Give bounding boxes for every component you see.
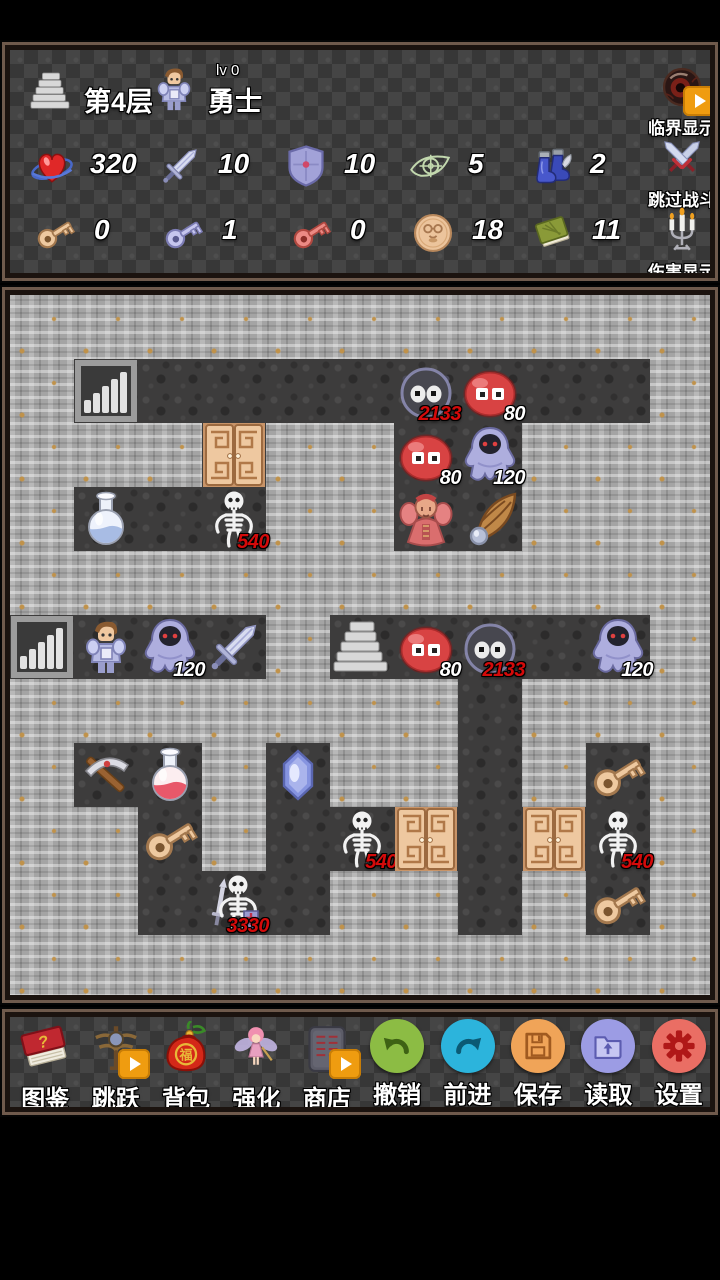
floor-label: 第4层 (84, 80, 153, 119)
attack-value: 10 (218, 148, 249, 180)
entity-slime[interactable]: 80 (394, 423, 458, 487)
floor-tile[interactable] (138, 871, 202, 935)
floor-stairs-icon (28, 68, 74, 114)
toolbar-grid: 图鉴 跳跃 背包 强化 商店撤销前进保存读取设置 (10, 1017, 710, 1107)
load-label: 读取 (584, 1075, 632, 1107)
entity-door[interactable] (522, 807, 586, 871)
floor-tile[interactable] (458, 871, 522, 935)
undo-icon (370, 1019, 424, 1073)
entity-sword[interactable] (202, 615, 266, 679)
key-yellow-icon (586, 871, 650, 935)
blue-key-count: 1 (222, 214, 238, 246)
entity-skeleton[interactable]: 540 (202, 487, 266, 551)
vision-icon (406, 142, 454, 190)
door-icon (522, 807, 586, 871)
wing-icon (458, 487, 522, 551)
potion-blue-icon (74, 487, 138, 551)
load-icon (581, 1019, 635, 1073)
vision-value: 5 (468, 148, 484, 180)
medal-count: 18 (472, 214, 503, 246)
critical-display-icon (657, 62, 707, 112)
entity-ghost[interactable]: 120 (138, 615, 202, 679)
skip-battle-icon (657, 134, 707, 184)
save-label: 保存 (514, 1075, 562, 1107)
play-badge-icon (683, 86, 710, 116)
hero-name: 勇士 (208, 80, 262, 119)
map-grid: 213380801205401208021331205405403330 (10, 295, 710, 995)
save-button[interactable]: 保存 (503, 1017, 573, 1107)
redo-button[interactable]: 前进 (432, 1017, 502, 1107)
defense-icon (282, 142, 330, 190)
hp-icon (28, 142, 76, 190)
jump-icon (88, 1021, 144, 1077)
critical-display-button[interactable]: 临界显示 (636, 62, 710, 139)
red-key-count: 0 (350, 214, 366, 246)
hud-panel: 第4层 lv 0 勇士 3201010520101811 临界显示 跳过战斗 伤… (0, 40, 720, 283)
entity-skeleton-warrior[interactable]: 3330 (202, 871, 266, 935)
boots-value: 2 (590, 148, 606, 180)
enhance-button[interactable]: 强化 (221, 1017, 291, 1107)
red-key-icon (288, 210, 334, 256)
door-icon (202, 423, 266, 487)
bag-icon (158, 1021, 214, 1077)
floor-tile[interactable] (458, 807, 522, 871)
damage-label: 120 (621, 659, 653, 682)
redo-label: 前进 (444, 1075, 492, 1107)
skip-battle-button[interactable]: 跳过战斗 (636, 134, 710, 211)
floor-tile[interactable] (458, 743, 522, 807)
medal-icon (410, 210, 456, 256)
shop-label: 商店 (303, 1079, 351, 1107)
shop-button[interactable]: 商店 (292, 1017, 362, 1107)
entity-bat[interactable]: 2133 (394, 359, 458, 423)
jump-label: 跳跃 (92, 1079, 140, 1107)
floor-tile[interactable] (266, 807, 330, 871)
sword-icon (202, 615, 266, 679)
door-icon (394, 807, 458, 871)
floor-tile[interactable] (586, 359, 650, 423)
yellow-key-icon (32, 210, 78, 256)
floor-tile[interactable] (266, 359, 330, 423)
floor-tile[interactable] (266, 871, 330, 935)
attack-icon (156, 142, 204, 190)
entity-stairs-up[interactable] (74, 359, 138, 423)
jump-button[interactable]: 跳跃 (80, 1017, 150, 1107)
floor-tile[interactable] (330, 359, 394, 423)
entity-priest[interactable] (394, 487, 458, 551)
damage-label: 540 (237, 531, 269, 554)
stairs-down-icon (330, 615, 394, 679)
entity-ghost[interactable]: 120 (586, 615, 650, 679)
entity-key-yellow[interactable] (586, 871, 650, 935)
damage-display-button[interactable]: 伤害显示 (636, 206, 710, 273)
entity-door[interactable] (202, 423, 266, 487)
redo-icon (441, 1019, 495, 1073)
play-badge-icon (118, 1049, 150, 1079)
entity-bat[interactable]: 2133 (458, 615, 522, 679)
pickaxe-icon (74, 743, 138, 807)
settings-icon (652, 1019, 706, 1073)
guide-button[interactable]: 图鉴 (10, 1017, 80, 1107)
entity-potion-red[interactable] (138, 743, 202, 807)
bag-label: 背包 (162, 1079, 210, 1107)
enhance-icon (228, 1021, 284, 1077)
floor-tile[interactable] (138, 359, 202, 423)
entity-ghost[interactable]: 120 (458, 423, 522, 487)
priest-icon (394, 487, 458, 551)
hp-value: 320 (90, 148, 137, 180)
undo-label: 撤销 (373, 1075, 421, 1107)
shop-icon (299, 1021, 355, 1077)
key-yellow-icon (138, 807, 202, 871)
bag-button[interactable]: 背包 (151, 1017, 221, 1107)
floor-tile[interactable] (522, 359, 586, 423)
stairs-up-icon (74, 359, 138, 423)
entity-hero (74, 615, 138, 679)
damage-label: 2133 (483, 659, 526, 682)
damage-display-icon (657, 206, 707, 256)
boots-icon (528, 142, 576, 190)
potion-red-icon (138, 743, 202, 807)
floor-tile[interactable] (138, 487, 202, 551)
entity-gem[interactable] (266, 743, 330, 807)
enhance-label: 强化 (232, 1079, 280, 1107)
entity-slime[interactable]: 80 (458, 359, 522, 423)
yellow-key-count: 0 (94, 214, 110, 246)
damage-display-label: 伤害显示 (636, 258, 710, 273)
entity-door[interactable] (394, 807, 458, 871)
key-yellow-icon (586, 743, 650, 807)
gem-icon (266, 743, 330, 807)
undo-button[interactable]: 撤销 (362, 1017, 432, 1107)
floor-tile[interactable] (522, 615, 586, 679)
damage-label: 540 (365, 851, 397, 874)
entity-slime[interactable]: 80 (394, 615, 458, 679)
entity-wing[interactable] (458, 487, 522, 551)
book-icon (530, 210, 576, 256)
map-panel: 213380801205401208021331205405403330 (0, 285, 720, 1005)
hero-level: lv 0 (216, 62, 239, 79)
entity-skeleton[interactable]: 540 (330, 807, 394, 871)
entity-skeleton[interactable]: 540 (586, 807, 650, 871)
entity-pickaxe[interactable] (74, 743, 138, 807)
play-badge-icon (329, 1049, 361, 1079)
entity-stairs-up[interactable] (10, 615, 74, 679)
entity-potion-blue[interactable] (74, 487, 138, 551)
book-count: 11 (592, 214, 621, 246)
floor-tile[interactable] (202, 359, 266, 423)
stairs-up-icon (10, 615, 74, 679)
blue-key-icon (160, 210, 206, 256)
floor-tile[interactable] (458, 679, 522, 743)
guide-icon (17, 1021, 73, 1077)
entity-key-yellow[interactable] (586, 743, 650, 807)
entity-stairs-down[interactable] (330, 615, 394, 679)
defense-value: 10 (344, 148, 375, 180)
toolbar-panel: 图鉴 跳跃 背包 强化 商店撤销前进保存读取设置 (0, 1007, 720, 1117)
hero-icon (74, 615, 138, 679)
load-button[interactable]: 读取 (573, 1017, 643, 1107)
guide-label: 图鉴 (21, 1079, 69, 1107)
entity-key-yellow[interactable] (138, 807, 202, 871)
hero-portrait (148, 63, 200, 115)
damage-label: 120 (173, 659, 205, 682)
settings-button[interactable]: 设置 (644, 1017, 710, 1107)
damage-label: 3330 (227, 915, 270, 938)
save-icon (511, 1019, 565, 1073)
settings-label: 设置 (655, 1075, 703, 1107)
